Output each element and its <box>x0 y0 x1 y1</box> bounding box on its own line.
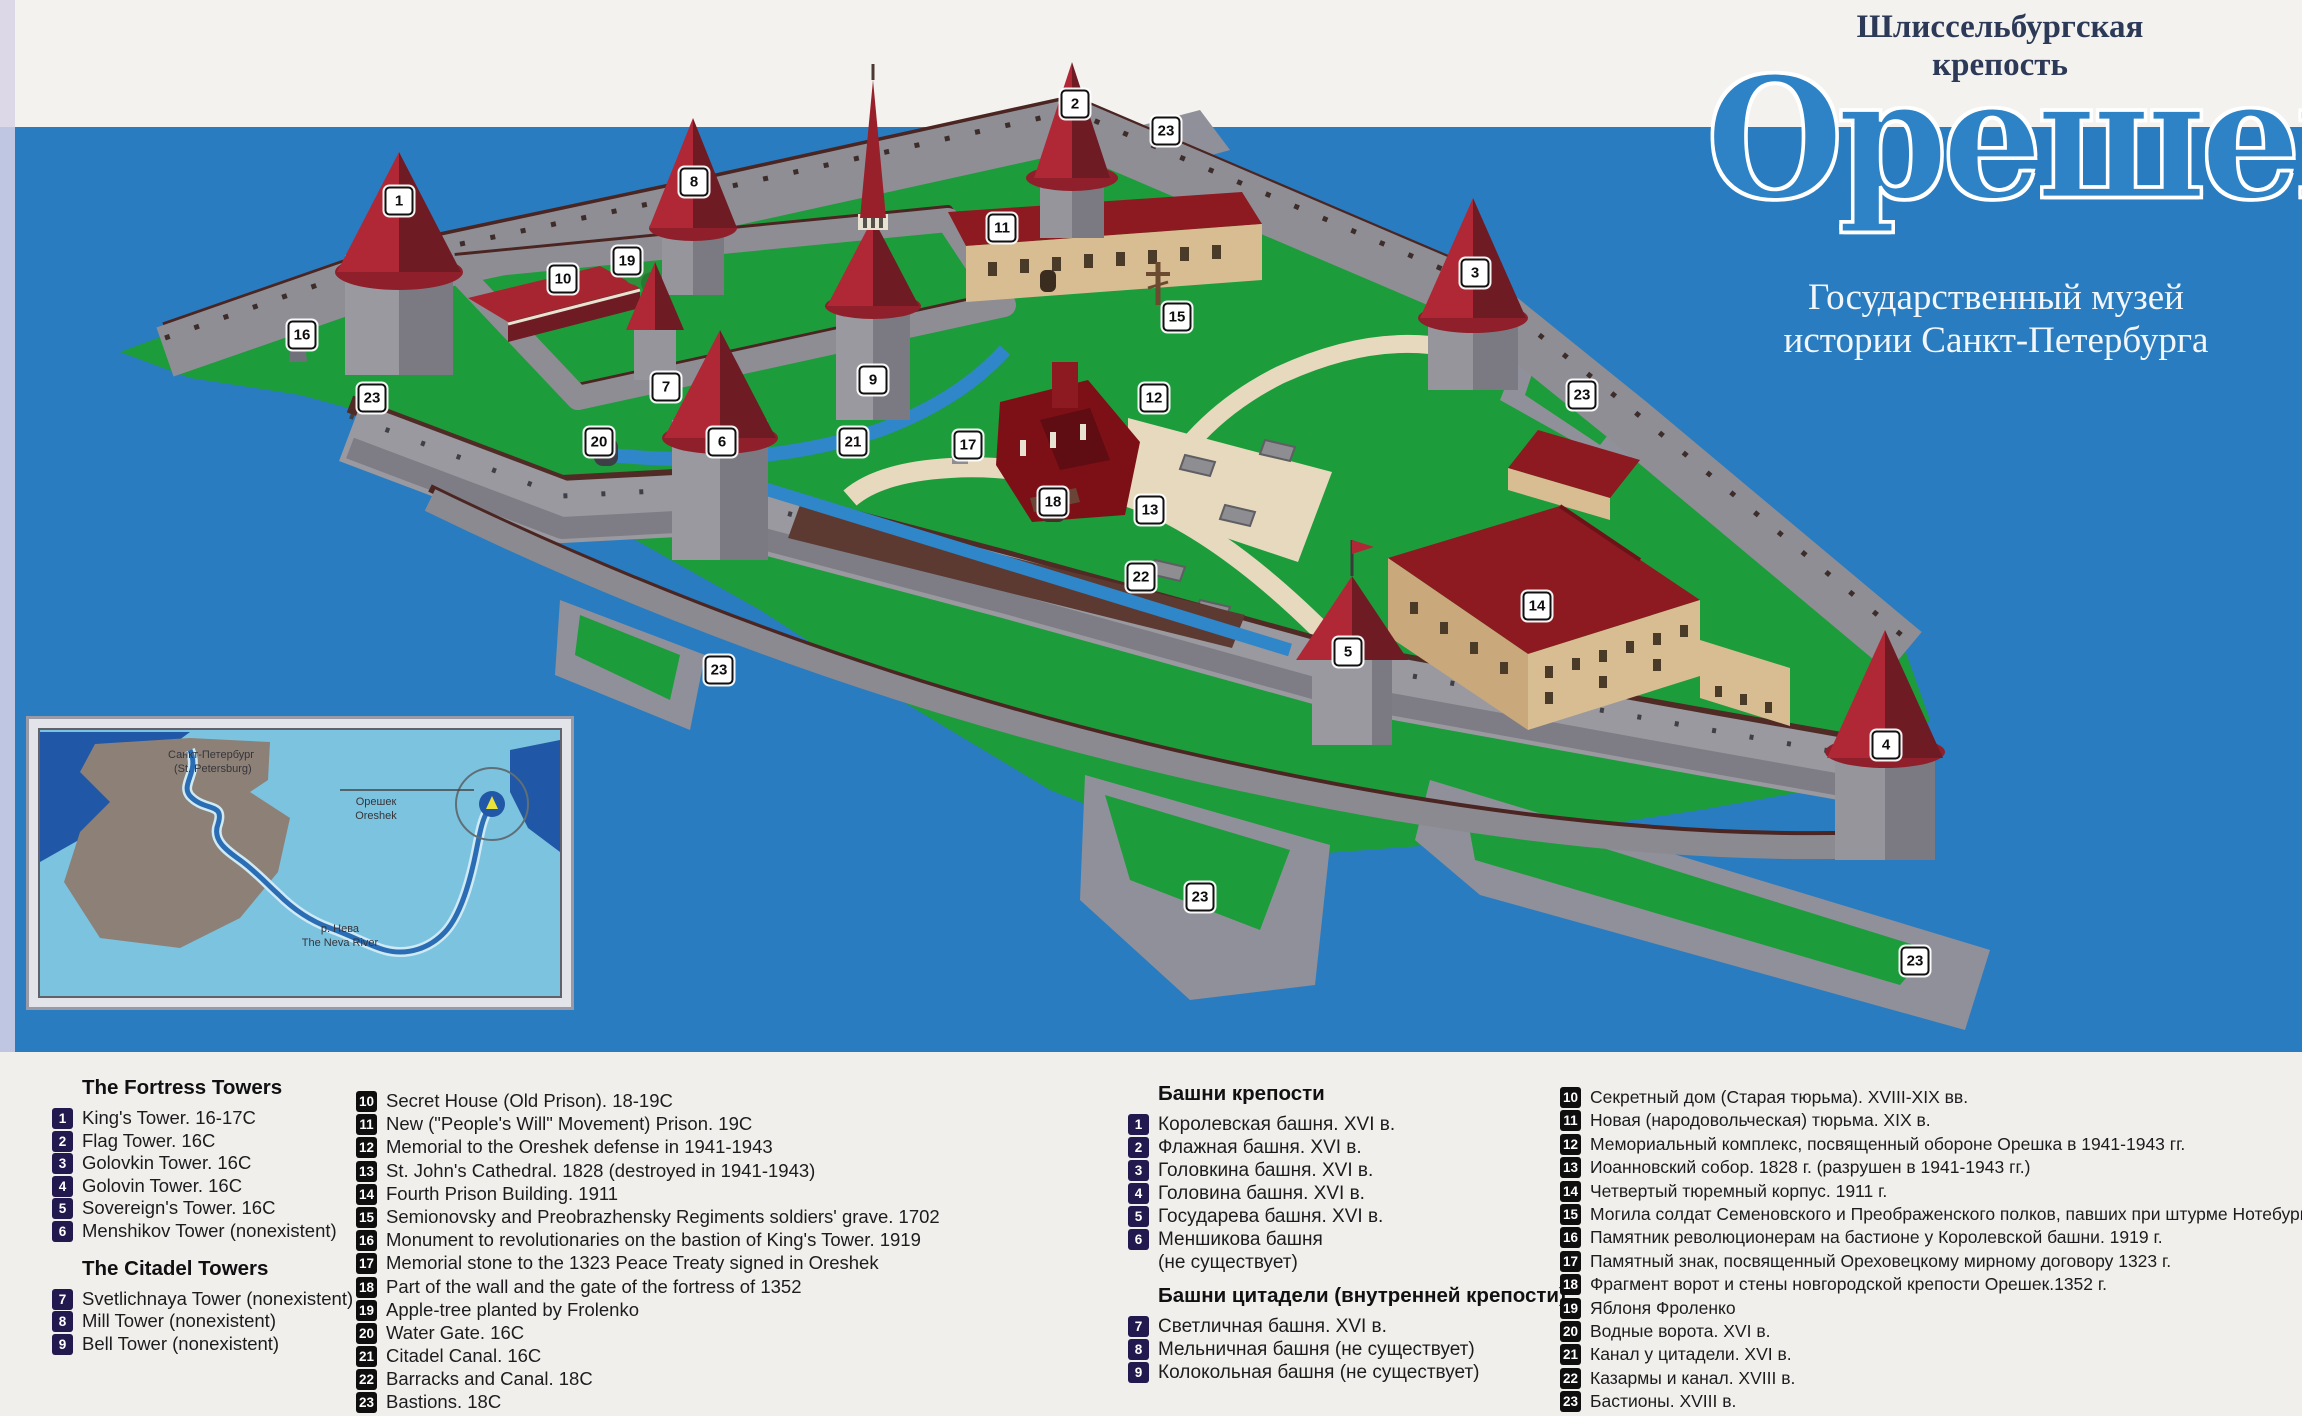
map-marker: 16 <box>288 321 317 350</box>
location-inset-map: Санкт-Петербург (St. Petersburg) Орешек … <box>26 716 574 1010</box>
legend-text: Меншикова башня(не существует) <box>1158 1228 1323 1274</box>
legend-row: 5Sovereign's Tower. 16C <box>52 1197 352 1220</box>
subtitle-line1: Государственный музей <box>1690 276 2302 319</box>
legend-text: Яблоня Фроленко <box>1590 1297 1736 1320</box>
legend-badge: 12 <box>1560 1134 1581 1155</box>
map-marker: 23 <box>1568 381 1597 410</box>
legend-text: St. John's Cathedral. 1828 (destroyed in… <box>386 1160 815 1183</box>
legend-badge: 10 <box>1560 1087 1581 1108</box>
map-marker: 5 <box>1334 638 1363 667</box>
legend-badge: 2 <box>52 1131 73 1152</box>
legend-row: 2Flag Tower. 16C <box>52 1130 352 1153</box>
legend-row: 13Иоанновский собор. 1828 г. (разрушен в… <box>1560 1156 2300 1179</box>
legend-row: 17Памятный знак, посвященный Ореховецком… <box>1560 1250 2300 1273</box>
legend-row: 12Memorial to the Oreshek defense in 194… <box>356 1136 976 1159</box>
legend-badge: 1 <box>1128 1114 1149 1135</box>
legend-text: Apple-tree planted by Frolenko <box>386 1299 639 1322</box>
legend-text: Citadel Canal. 16C <box>386 1345 541 1368</box>
legend-en-fortress-list: 1King's Tower. 16-17C2Flag Tower. 16C3Go… <box>52 1107 352 1243</box>
legend-badge: 14 <box>1560 1181 1581 1202</box>
legend-row: 18Part of the wall and the gate of the f… <box>356 1276 976 1299</box>
legend-text: Mill Tower (nonexistent) <box>82 1310 276 1333</box>
legend-text: Sovereign's Tower. 16C <box>82 1197 275 1220</box>
legend-badge: 23 <box>356 1392 377 1413</box>
legend-row: 16Monument to revolutionaries on the bas… <box>356 1229 976 1252</box>
legend-badge: 16 <box>356 1230 377 1251</box>
map-marker: 13 <box>1136 496 1165 525</box>
map-marker: 4 <box>1872 731 1901 760</box>
map-marker: 18 <box>1039 488 1068 517</box>
map-marker: 2 <box>1061 90 1090 119</box>
legend-en-citadel-list: 7Svetlichnaya Tower (nonexistent)8Mill T… <box>52 1288 352 1356</box>
legend-text: Semionovsky and Preobrazhensky Regiments… <box>386 1206 940 1229</box>
legend-text: Menshikov Tower (nonexistent) <box>82 1220 337 1243</box>
cathedral-tower-stub <box>1052 362 1078 408</box>
legend-badge: 19 <box>356 1300 377 1321</box>
legend-row: 11Новая (народовольческая) тюрьма. XIX в… <box>1560 1109 2300 1132</box>
legend-row: 19Яблоня Фроленко <box>1560 1297 2300 1320</box>
map-marker: 20 <box>585 428 614 457</box>
new-prison-door <box>1040 270 1056 292</box>
legend-row: 1Королевская башня. XVI в. <box>1128 1113 1598 1136</box>
legend-badge: 11 <box>356 1114 377 1135</box>
legend-text: Головина башня. XVI в. <box>1158 1182 1365 1205</box>
legend-badge: 15 <box>356 1207 377 1228</box>
legend-badge: 3 <box>1128 1160 1149 1181</box>
oreshek-logo: Орешек <box>1706 34 2302 246</box>
legend-row: 6Меншикова башня(не существует) <box>1128 1228 1598 1274</box>
map-marker: 23 <box>705 656 734 685</box>
legend-row: 17Memorial stone to the 1323 Peace Treat… <box>356 1252 976 1275</box>
inset-fort-label-ru: Орешек <box>356 796 397 808</box>
legend-badge: 1 <box>52 1108 73 1129</box>
legend-badge: 14 <box>356 1184 377 1205</box>
tower-8-mill <box>649 118 737 295</box>
legend-text: Secret House (Old Prison). 18-19C <box>386 1090 673 1113</box>
map-marker: 23 <box>1901 947 1930 976</box>
legend-badge: 18 <box>1560 1274 1581 1295</box>
legend-text: Barracks and Canal. 18C <box>386 1368 593 1391</box>
legend-row: 5Государева башня. XVI в. <box>1128 1205 1598 1228</box>
legend-badge: 9 <box>52 1334 73 1355</box>
legend-ru-fortress-list: 1Королевская башня. XVI в.2Флажная башня… <box>1128 1113 1598 1274</box>
legend-text: Памятный знак, посвященный Ореховецкому … <box>1590 1250 2171 1273</box>
map-marker: 23 <box>1152 117 1181 146</box>
legend-badge: 12 <box>356 1137 377 1158</box>
legend-row: 8Мельничная башня (не существует) <box>1128 1338 1598 1361</box>
legend-text: New ("People's Will" Movement) Prison. 1… <box>386 1113 752 1136</box>
legend-badge: 9 <box>1128 1362 1149 1383</box>
map-marker: 22 <box>1127 563 1156 592</box>
legend-row: 15Могила солдат Семеновского и Преображе… <box>1560 1203 2300 1226</box>
legend-ru-citadel-list: 7Светличная башня. XVI в.8Мельничная баш… <box>1128 1315 1598 1384</box>
legend-badge: 2 <box>1128 1137 1149 1158</box>
legend-row: 4Головина башня. XVI в. <box>1128 1182 1598 1205</box>
legend-row: 4Golovin Tower. 16C <box>52 1175 352 1198</box>
legend-row: 14Fourth Prison Building. 1911 <box>356 1183 976 1206</box>
legend-badge: 13 <box>356 1161 377 1182</box>
legend-row: 9Колокольная башня (не существует) <box>1128 1361 1598 1384</box>
legend-row: 1King's Tower. 16-17C <box>52 1107 352 1130</box>
legend-badge: 6 <box>52 1221 73 1242</box>
legend-text: Головкина башня. XVI в. <box>1158 1159 1373 1182</box>
legend-row: 12Мемориальный комплекс, посвященный обо… <box>1560 1133 2300 1156</box>
legend-text: Памятник революционерам на бастионе у Ко… <box>1590 1226 2163 1249</box>
inset-frame: Санкт-Петербург (St. Petersburg) Орешек … <box>38 728 562 998</box>
legend-text: Иоанновский собор. 1828 г. (разрушен в 1… <box>1590 1156 2030 1179</box>
inset-fort-label-en: Oreshek <box>355 810 397 822</box>
legend-row: 22Barracks and Canal. 18C <box>356 1368 976 1391</box>
map-marker: 3 <box>1461 259 1490 288</box>
fortress-sign: Шлиссельбургская крепость Орешек Государ… <box>0 0 2302 1416</box>
legend-row: 10Secret House (Old Prison). 18-19C <box>356 1090 976 1113</box>
legend-badge: 23 <box>1560 1391 1581 1412</box>
legend-badge: 19 <box>1560 1298 1581 1319</box>
legend-text: Water Gate. 16C <box>386 1322 524 1345</box>
legend-row: 11New ("People's Will" Movement) Prison.… <box>356 1113 976 1136</box>
legend-en-citadel-header: The Citadel Towers <box>82 1257 352 1281</box>
legend-ru-towers-column: Башни крепости 1Королевская башня. XVI в… <box>1128 1082 1598 1384</box>
map-marker: 15 <box>1163 303 1192 332</box>
legend-row: 23Бастионы. XVIII в. <box>1560 1390 2300 1413</box>
subtitle-line2: истории Санкт-Петербурга <box>1690 319 2302 362</box>
legend-text: Секретный дом (Старая тюрьма). XVIII-XIX… <box>1590 1086 1968 1109</box>
legend-text: Memorial to the Oreshek defense in 1941-… <box>386 1136 773 1159</box>
legend-text: Водные ворота. XVI в. <box>1590 1320 1771 1343</box>
legend-badge: 20 <box>1560 1321 1581 1342</box>
legend-badge: 5 <box>1128 1206 1149 1227</box>
map-marker: 23 <box>1186 883 1215 912</box>
legend-text: Memorial stone to the 1323 Peace Treaty … <box>386 1252 879 1275</box>
legend-row: 23Bastions. 18C <box>356 1391 976 1414</box>
legend-text: Golovkin Tower. 16C <box>82 1152 251 1175</box>
legend-ru-citadel-header: Башни цитадели (внутренней крепости) <box>1158 1284 1598 1308</box>
legend-en-towers-column: The Fortress Towers 1King's Tower. 16-17… <box>52 1076 352 1355</box>
legend-text: Королевская башня. XVI в. <box>1158 1113 1395 1136</box>
legend-badge: 11 <box>1560 1110 1581 1131</box>
legend-text: Светличная башня. XVI в. <box>1158 1315 1387 1338</box>
legend-text: Канал у цитадели. XVI в. <box>1590 1343 1792 1366</box>
legend-text: Мельничная башня (не существует) <box>1158 1338 1475 1361</box>
legend-badge: 18 <box>356 1277 377 1298</box>
museum-subtitle: Государственный музей истории Санкт-Пете… <box>1690 276 2302 362</box>
map-marker: 1 <box>385 187 414 216</box>
legend-row: 8Mill Tower (nonexistent) <box>52 1310 352 1333</box>
legend-row: 7Svetlichnaya Tower (nonexistent) <box>52 1288 352 1311</box>
legend-row: 22Казармы и канал. XVIII в. <box>1560 1367 2300 1390</box>
legend-text: Четвертый тюремный корпус. 1911 г. <box>1590 1180 1887 1203</box>
legend-row: 18Фрагмент ворот и стены новгородской кр… <box>1560 1273 2300 1296</box>
inset-city-label-ru: Санкт-Петербург <box>168 749 254 761</box>
map-marker: 12 <box>1140 384 1169 413</box>
legend-row: 10Секретный дом (Старая тюрьма). XVIII-X… <box>1560 1086 2300 1109</box>
inset-river-label-ru: р. Нева <box>321 923 360 935</box>
legend-en-items-column: 10Secret House (Old Prison). 18-19C11New… <box>356 1090 976 1415</box>
legend-badge: 20 <box>356 1323 377 1344</box>
legend-row: 7Светличная башня. XVI в. <box>1128 1315 1598 1338</box>
tower-1-kings <box>335 152 463 375</box>
legend-badge: 8 <box>1128 1339 1149 1360</box>
legend-badge: 15 <box>1560 1204 1581 1225</box>
legend-text: Golovin Tower. 16C <box>82 1175 242 1198</box>
legend-text: Bell Tower (nonexistent) <box>82 1333 279 1356</box>
legend-badge: 5 <box>52 1198 73 1219</box>
tower-3-golovkin <box>1418 198 1528 390</box>
legend-text: Бастионы. XVIII в. <box>1590 1390 1736 1413</box>
legend-badge: 7 <box>1128 1316 1149 1337</box>
map-marker: 19 <box>613 247 642 276</box>
legend-row: 21Канал у цитадели. XVI в. <box>1560 1343 2300 1366</box>
map-marker: 23 <box>358 384 387 413</box>
legend-badge: 7 <box>52 1289 73 1310</box>
legend-badge: 4 <box>1128 1183 1149 1204</box>
legend-badge: 16 <box>1560 1227 1581 1248</box>
legend-row: 3Головкина башня. XVI в. <box>1128 1159 1598 1182</box>
legend-text: Monument to revolutionaries on the basti… <box>386 1229 921 1252</box>
legend-badge: 6 <box>1128 1229 1149 1250</box>
legend-row: 19Apple-tree planted by Frolenko <box>356 1299 976 1322</box>
legend-badge: 3 <box>52 1153 73 1174</box>
legend-text: Новая (народовольческая) тюрьма. XIX в. <box>1590 1109 1931 1132</box>
legend-badge: 17 <box>1560 1251 1581 1272</box>
legend-row: 16Памятник революционерам на бастионе у … <box>1560 1226 2300 1249</box>
legend-row: 14Четвертый тюремный корпус. 1911 г. <box>1560 1180 2300 1203</box>
map-marker: 17 <box>954 431 983 460</box>
legend-row: 9Bell Tower (nonexistent) <box>52 1333 352 1356</box>
legend-row: 21Citadel Canal. 16C <box>356 1345 976 1368</box>
legend-text: Казармы и канал. XVIII в. <box>1590 1367 1795 1390</box>
inset-river-label-en: The Neva River <box>302 937 379 949</box>
legend-badge: 22 <box>356 1369 377 1390</box>
legend-row: 20Water Gate. 16C <box>356 1322 976 1345</box>
legend-row: 20Водные ворота. XVI в. <box>1560 1320 2300 1343</box>
legend-badge: 17 <box>356 1253 377 1274</box>
legend-text: Могила солдат Семеновского и Преображенс… <box>1590 1203 2302 1226</box>
legend-badge: 22 <box>1560 1368 1581 1389</box>
legend-row: 2Флажная башня. XVI в. <box>1128 1136 1598 1159</box>
map-marker: 10 <box>549 265 578 294</box>
legend-text: Fourth Prison Building. 1911 <box>386 1183 618 1206</box>
legend-badge: 21 <box>356 1346 377 1367</box>
map-marker: 8 <box>680 168 709 197</box>
legend-text: Bastions. 18C <box>386 1391 501 1414</box>
map-marker: 21 <box>839 428 868 457</box>
legend-text: King's Tower. 16-17C <box>82 1107 256 1130</box>
legend-badge: 4 <box>52 1176 73 1197</box>
map-marker: 11 <box>988 214 1017 243</box>
legend-text: Государева башня. XVI в. <box>1158 1205 1383 1228</box>
map-marker: 6 <box>708 428 737 457</box>
legend-badge: 8 <box>52 1311 73 1332</box>
legend-text: Svetlichnaya Tower (nonexistent) <box>82 1288 353 1311</box>
legend-text: Мемориальный комплекс, посвященный оборо… <box>1590 1133 2185 1156</box>
legend-text: Flag Tower. 16C <box>82 1130 215 1153</box>
legend-badge: 10 <box>356 1091 377 1112</box>
legend-text: Флажная башня. XVI в. <box>1158 1136 1362 1159</box>
legend-ru-fortress-header: Башни крепости <box>1158 1082 1598 1106</box>
map-marker: 14 <box>1523 592 1552 621</box>
legend-text: Part of the wall and the gate of the for… <box>386 1276 801 1299</box>
legend-ru-items-column: 10Секретный дом (Старая тюрьма). XVIII-X… <box>1560 1086 2300 1414</box>
legend-row: 15Semionovsky and Preobrazhensky Regimen… <box>356 1206 976 1229</box>
map-marker: 9 <box>859 366 888 395</box>
map-marker: 7 <box>652 373 681 402</box>
legend-badge: 21 <box>1560 1344 1581 1365</box>
legend-row: 13St. John's Cathedral. 1828 (destroyed … <box>356 1160 976 1183</box>
legend-row: 6Menshikov Tower (nonexistent) <box>52 1220 352 1243</box>
legend-text: Колокольная башня (не существует) <box>1158 1361 1479 1384</box>
legend-text: Фрагмент ворот и стены новгородской креп… <box>1590 1273 2107 1296</box>
inset-map-svg: Санкт-Петербург (St. Petersburg) Орешек … <box>40 730 560 996</box>
legend-badge: 13 <box>1560 1157 1581 1178</box>
legend-en-fortress-header: The Fortress Towers <box>82 1076 352 1100</box>
legend-row: 3Golovkin Tower. 16C <box>52 1152 352 1175</box>
inset-city-label-en: (St. Petersburg) <box>174 763 252 775</box>
